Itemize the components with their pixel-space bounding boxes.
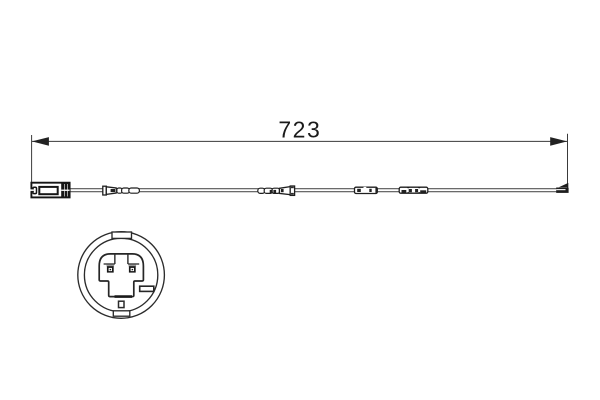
- svg-text:723: 723: [278, 116, 321, 142]
